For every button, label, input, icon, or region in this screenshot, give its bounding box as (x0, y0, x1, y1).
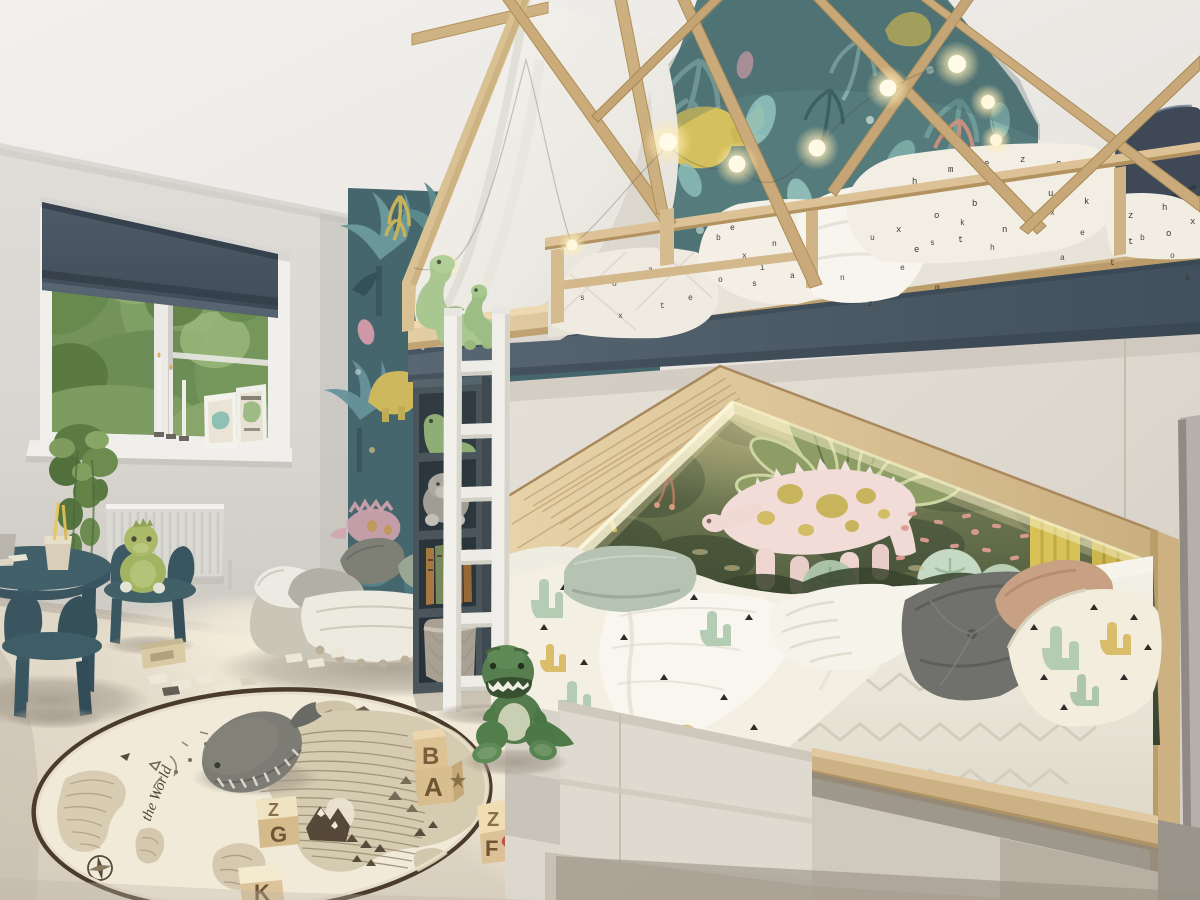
svg-text:z: z (1128, 211, 1133, 221)
svg-text:k: k (1084, 197, 1089, 207)
svg-text:s: s (1185, 274, 1190, 283)
svg-text:n: n (840, 274, 845, 283)
svg-text:x: x (896, 225, 901, 235)
svg-text:t: t (1110, 259, 1115, 268)
svg-text:Z: Z (268, 800, 279, 820)
svg-text:e: e (688, 294, 693, 303)
svg-text:a: a (790, 272, 795, 281)
svg-text:b: b (1140, 234, 1145, 243)
svg-text:s: s (752, 280, 757, 289)
svg-text:t: t (958, 235, 963, 245)
svg-text:G: G (270, 822, 287, 847)
svg-text:s: s (930, 239, 935, 248)
svg-text:z: z (868, 300, 873, 309)
svg-text:Z: Z (487, 809, 499, 831)
svg-text:k: k (960, 219, 965, 228)
svg-text:F: F (485, 836, 498, 861)
svg-text:h: h (1162, 203, 1167, 213)
svg-text:x: x (1190, 217, 1195, 227)
svg-text:i: i (760, 264, 765, 273)
svg-text:n: n (1002, 225, 1007, 235)
svg-text:e: e (900, 264, 905, 273)
svg-text:o: o (934, 211, 939, 221)
svg-text:t: t (1128, 237, 1133, 247)
svg-text:z: z (1020, 155, 1025, 165)
svg-text:B: B (422, 743, 439, 770)
svg-text:o: o (1166, 229, 1171, 239)
svg-text:b: b (716, 234, 721, 243)
svg-text:o: o (1170, 252, 1175, 261)
svg-text:e: e (914, 245, 919, 255)
svg-text:m: m (948, 165, 953, 175)
svg-text:s: s (580, 294, 585, 303)
svg-text:A: A (424, 772, 443, 802)
svg-text:a: a (1060, 254, 1065, 263)
svg-text:u: u (870, 234, 875, 243)
svg-text:x: x (618, 312, 623, 321)
svg-text:m: m (935, 284, 940, 293)
svg-text:o: o (718, 276, 723, 285)
svg-text:t: t (660, 302, 665, 311)
svg-text:e: e (1080, 229, 1085, 238)
svg-text:h: h (990, 244, 995, 253)
svg-text:n: n (772, 240, 777, 249)
svg-text:b: b (972, 199, 977, 209)
svg-text:e: e (730, 224, 735, 233)
